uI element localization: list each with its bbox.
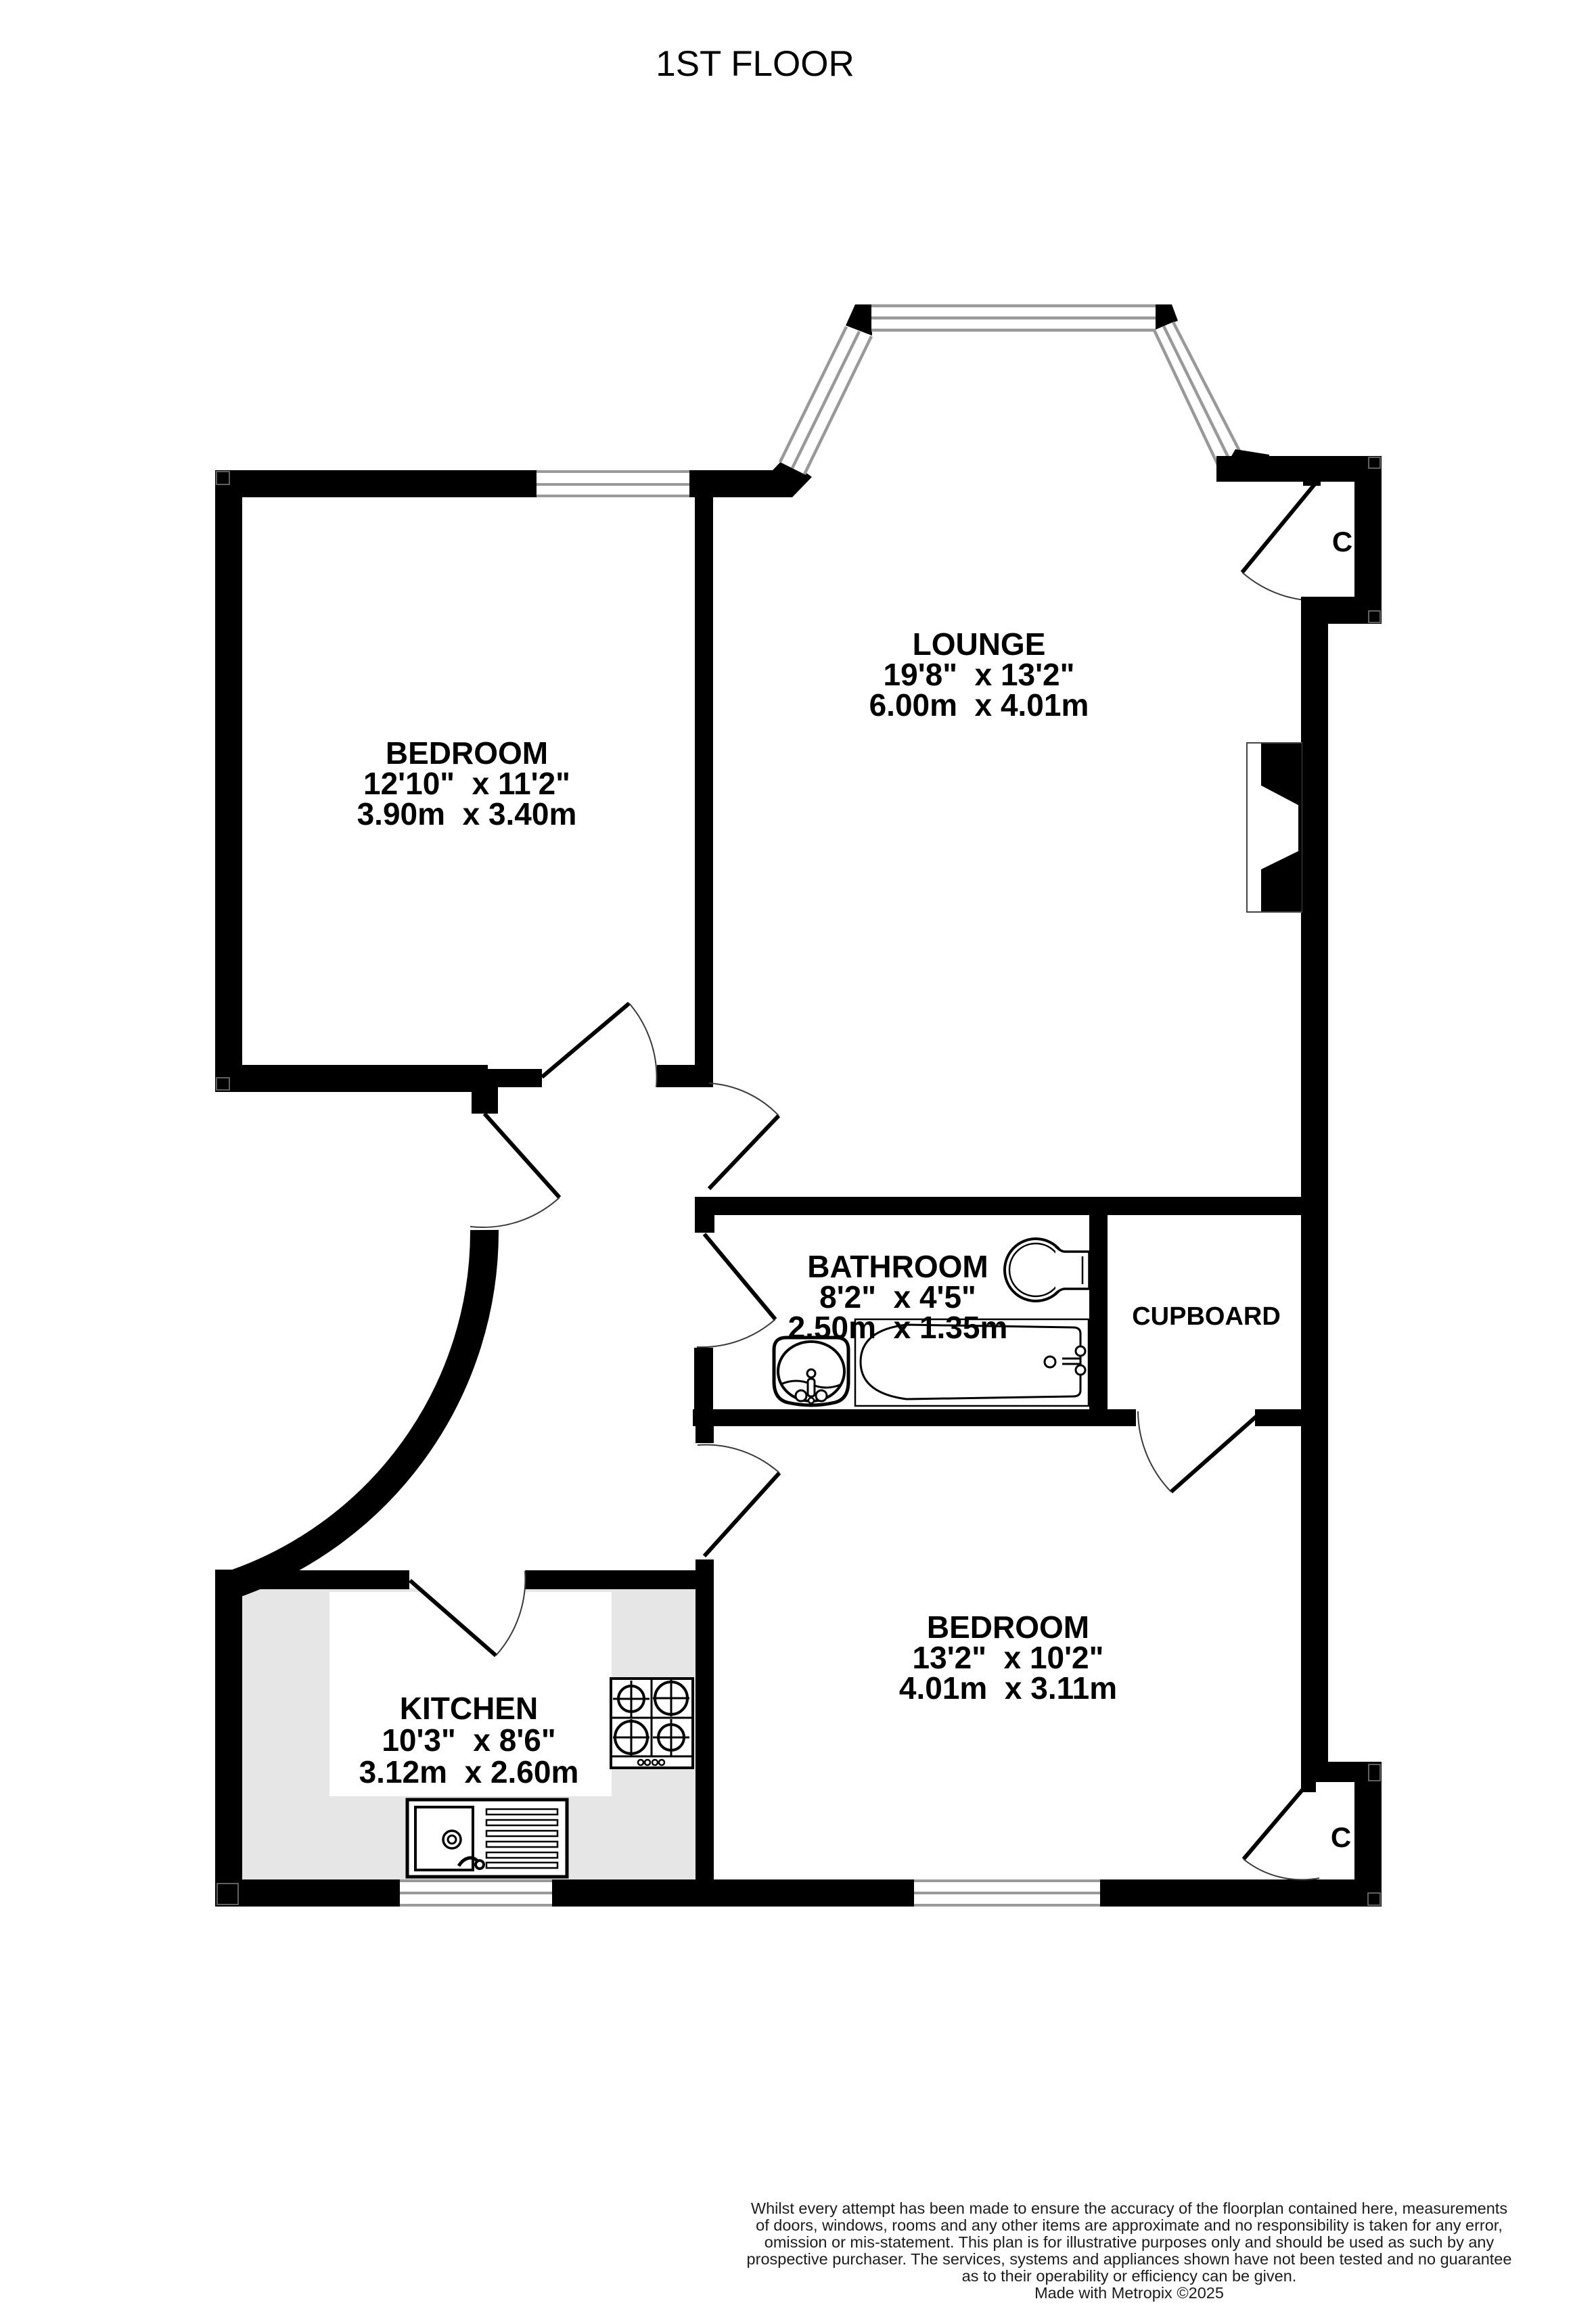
svg-text:3.12m x 2.60m: 3.12m x 2.60m (359, 1754, 579, 1789)
svg-text:2.50m x 1.35m: 2.50m x 1.35m (788, 1310, 1008, 1345)
svg-text:of doors, windows, rooms and a: of doors, windows, rooms and any other i… (756, 2216, 1503, 2234)
svg-text:omission or mis-statement. Thi: omission or mis-statement. This plan is … (765, 2233, 1495, 2251)
svg-text:1ST FLOOR: 1ST FLOOR (656, 44, 854, 84)
svg-text:4.01m x 3.11m: 4.01m x 3.11m (899, 1670, 1117, 1706)
svg-text:KITCHEN: KITCHEN (400, 1691, 538, 1726)
svg-text:Whilst every attempt has been: Whilst every attempt has been made to en… (751, 2199, 1507, 2217)
svg-text:10'3" x 8'6": 10'3" x 8'6" (382, 1723, 555, 1758)
svg-text:3.90m x 3.40m: 3.90m x 3.40m (357, 796, 577, 831)
svg-text:prospective purchaser. The ser: prospective purchaser. The services, sys… (747, 2250, 1512, 2268)
svg-text:C: C (1332, 526, 1352, 557)
svg-text:6.00m x 4.01m: 6.00m x 4.01m (869, 687, 1089, 723)
svg-text:CUPBOARD: CUPBOARD (1132, 1302, 1281, 1331)
svg-text:Made with Metropix ©2025: Made with Metropix ©2025 (1034, 2284, 1224, 2302)
svg-text:as to their operability or eff: as to their operability or efficiency ca… (962, 2267, 1297, 2285)
svg-text:C: C (1331, 1821, 1351, 1853)
